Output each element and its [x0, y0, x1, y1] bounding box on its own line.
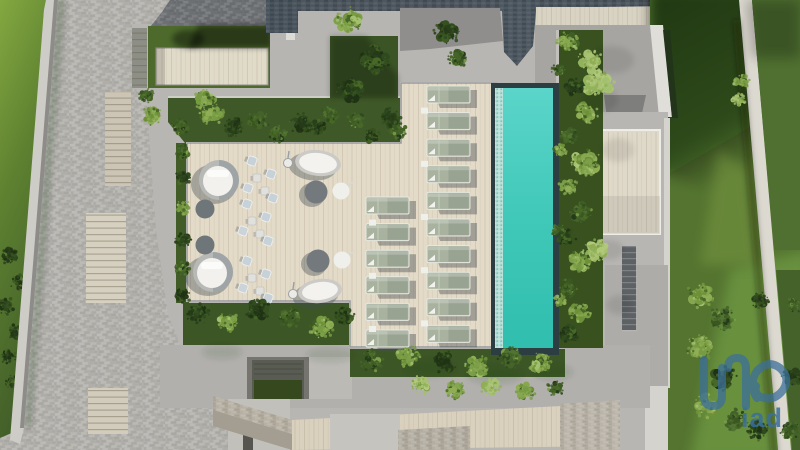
svg-text:iad: iad [741, 403, 783, 433]
